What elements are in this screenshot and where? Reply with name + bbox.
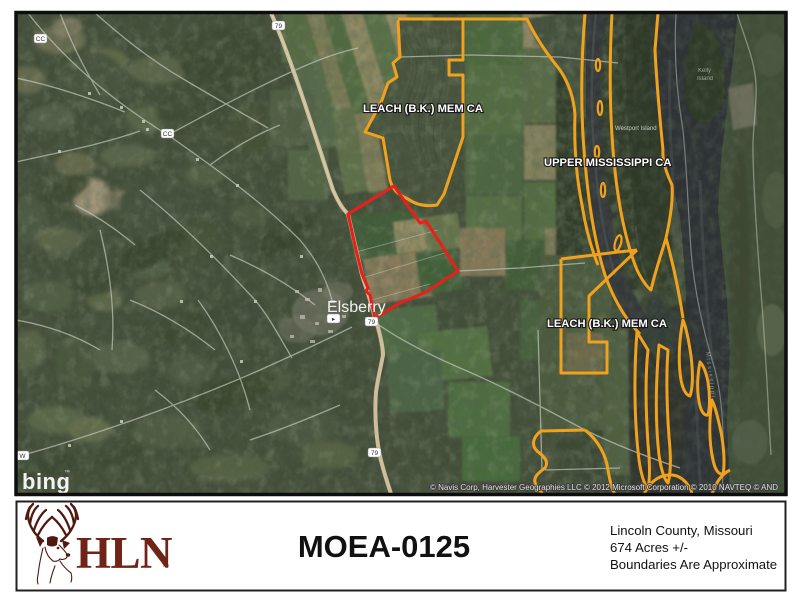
- svg-text:79: 79: [371, 450, 379, 457]
- svg-text:CC: CC: [163, 131, 173, 138]
- svg-text:Boundaries Are Approximate: Boundaries Are Approximate: [610, 557, 777, 572]
- svg-text:LEACH (B.K.) MEM CA: LEACH (B.K.) MEM CA: [547, 318, 667, 330]
- svg-text:W: W: [19, 453, 26, 460]
- svg-text:© Navis Corp, Harvester Geogra: © Navis Corp, Harvester Geographies LLC …: [430, 483, 778, 492]
- svg-text:UPPER MISSISSIPPI CA: UPPER MISSISSIPPI CA: [544, 157, 671, 169]
- svg-text:™: ™: [162, 564, 169, 571]
- svg-text:CC: CC: [36, 36, 46, 43]
- svg-text:79: 79: [275, 23, 283, 30]
- svg-text:LEACH (B.K.) MEM CA: LEACH (B.K.) MEM CA: [363, 103, 483, 115]
- svg-text:MOEA-0125: MOEA-0125: [298, 529, 470, 564]
- svg-text:HLN: HLN: [76, 528, 172, 578]
- svg-text:Westport Island: Westport Island: [615, 126, 657, 132]
- svg-text:Lincoln County, Missouri: Lincoln County, Missouri: [610, 523, 753, 538]
- svg-text:Kelly: Kelly: [698, 68, 711, 74]
- svg-text:674 Acres +/-: 674 Acres +/-: [610, 540, 688, 555]
- svg-text:Elsberry: Elsberry: [327, 299, 386, 316]
- svg-text:Island: Island: [697, 76, 713, 82]
- svg-text:™: ™: [64, 469, 70, 476]
- svg-text:79: 79: [368, 319, 376, 326]
